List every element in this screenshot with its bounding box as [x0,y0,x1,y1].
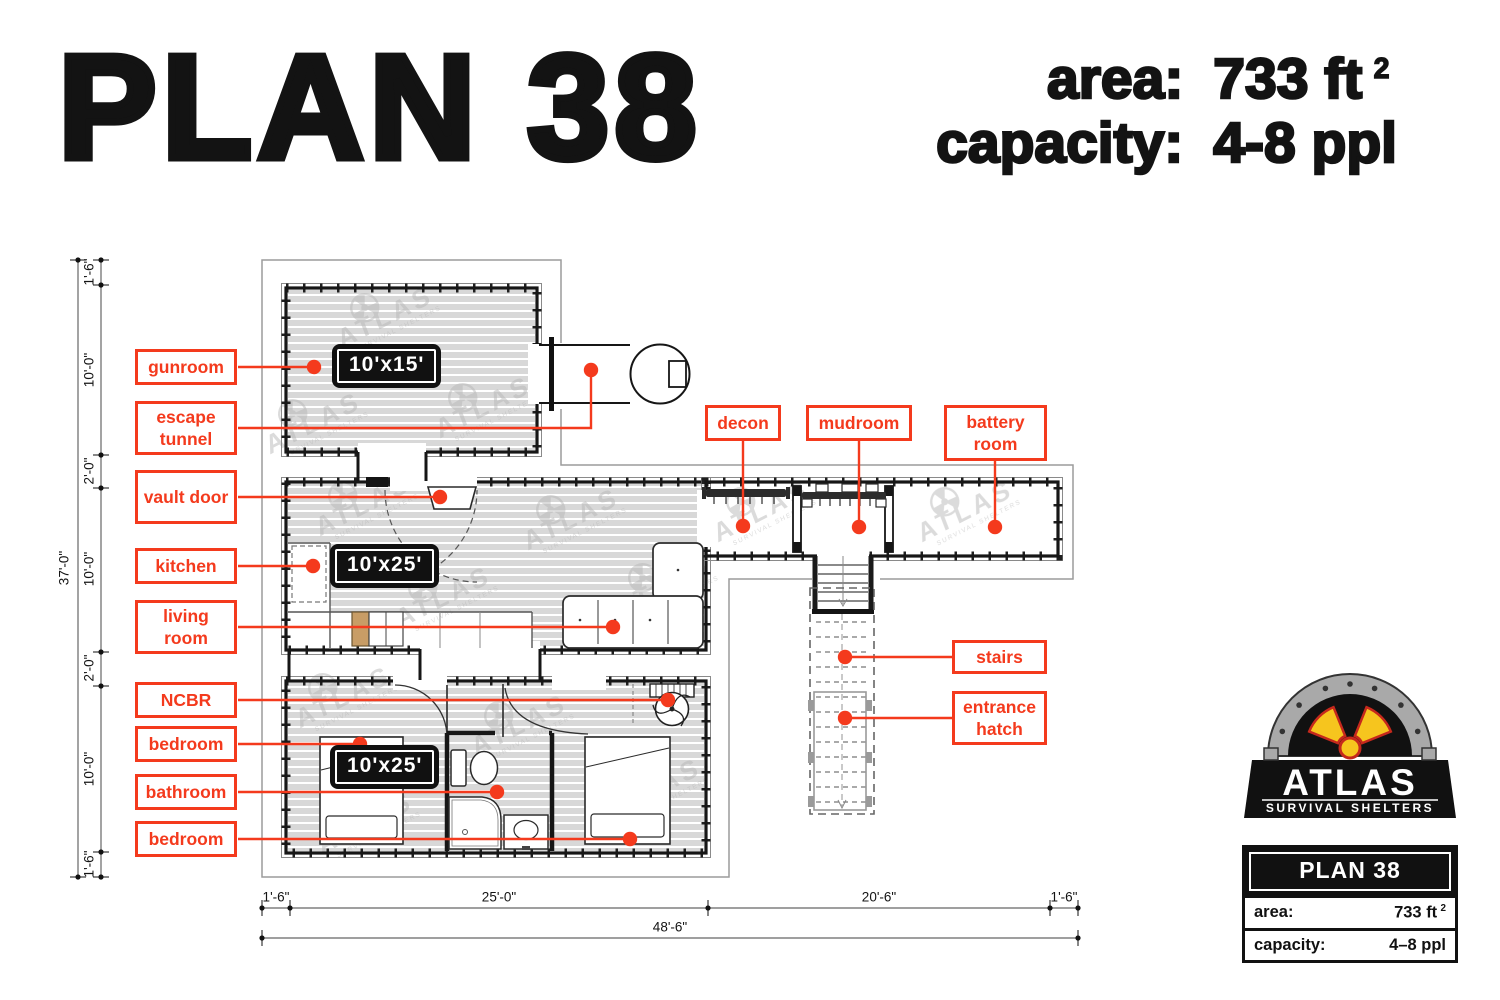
toilet [471,752,498,785]
logo-plan-name: PLAN 38 [1249,852,1451,891]
dim-left-seg-5: 10'-0" [82,752,97,786]
dim-bottom-seg-3: 1'-6" [1051,890,1078,905]
dim-bottom-seg-0: 1'-6" [263,890,290,905]
label-stairs: stairs [952,640,1047,674]
escape-tunnel-shape [539,337,690,411]
dim-left-seg-3: 10'-0" [82,552,97,586]
label-vault-door: vault door [135,470,237,524]
dim-left-total: 37'-0" [57,551,72,585]
dim-bottom-total: 48'-6" [653,920,687,935]
label-mudroom: mudroom [806,405,912,441]
dim-left-seg-4: 2'-0" [82,655,97,682]
logo-plan-row: PLAN 38 [1245,848,1455,895]
logo-capacity-row: capacity: 4–8 ppl [1245,928,1455,960]
label-living-room: living room [135,600,237,654]
badge-living-size: 10'x25' [331,545,438,587]
entrance-hatch-shape [808,692,872,810]
dim-bottom-seg-1: 25'-0" [482,890,516,905]
atlas-logo-emblem: ATLAS SURVIVAL SHELTERS [1237,668,1463,840]
atlas-logo: ATLAS SURVIVAL SHELTERS PLAN 38 area: 73… [1237,668,1463,963]
badge-gunroom-size: 10'x15' [333,345,440,387]
bed-right [585,737,670,844]
logo-capacity-label: capacity: [1254,936,1326,955]
dim-left-seg-6: 1'-6" [82,851,97,878]
label-battery-room: battery room [944,405,1047,461]
dim-left-seg-0: 1'-6" [82,259,97,286]
logo-area-label: area: [1254,903,1293,922]
stairs-shape [808,548,874,814]
label-entrance-hatch: entrance hatch [952,691,1047,745]
dim-left-seg-1: 10'-0" [82,353,97,387]
logo-capacity-value: 4–8 ppl [1389,936,1446,955]
logo-tagline-text: SURVIVAL SHELTERS [1266,801,1434,815]
label-gunroom: gunroom [135,349,237,385]
label-bedroom-2: bedroom [135,821,237,857]
dim-left-seg-2: 2'-0" [82,458,97,485]
label-escape-tunnel: escape tunnel [135,401,237,455]
tunnel-hatch [549,337,554,411]
label-ncbr: NCBR [135,682,237,718]
label-bathroom: bathroom [135,774,237,810]
label-bedroom-1: bedroom [135,726,237,762]
logo-spec-table: PLAN 38 area: 733 ft 2 capacity: 4–8 ppl [1242,845,1458,963]
plan-sheet: PLAN 38 area: 733 ft 2 capacity: 4-8 ppl… [0,0,1500,1000]
logo-area-row: area: 733 ft 2 [1245,895,1455,928]
label-decon: decon [705,405,781,441]
dim-bottom-seg-2: 20'-6" [862,890,896,905]
badge-bedroom-size: 10'x25' [331,746,438,788]
kitchen-island [352,612,369,646]
toilet-tank [451,750,466,786]
label-kitchen: kitchen [135,548,237,584]
logo-brand-text: ATLAS [1282,762,1418,803]
logo-area-value: 733 ft 2 [1394,903,1446,923]
